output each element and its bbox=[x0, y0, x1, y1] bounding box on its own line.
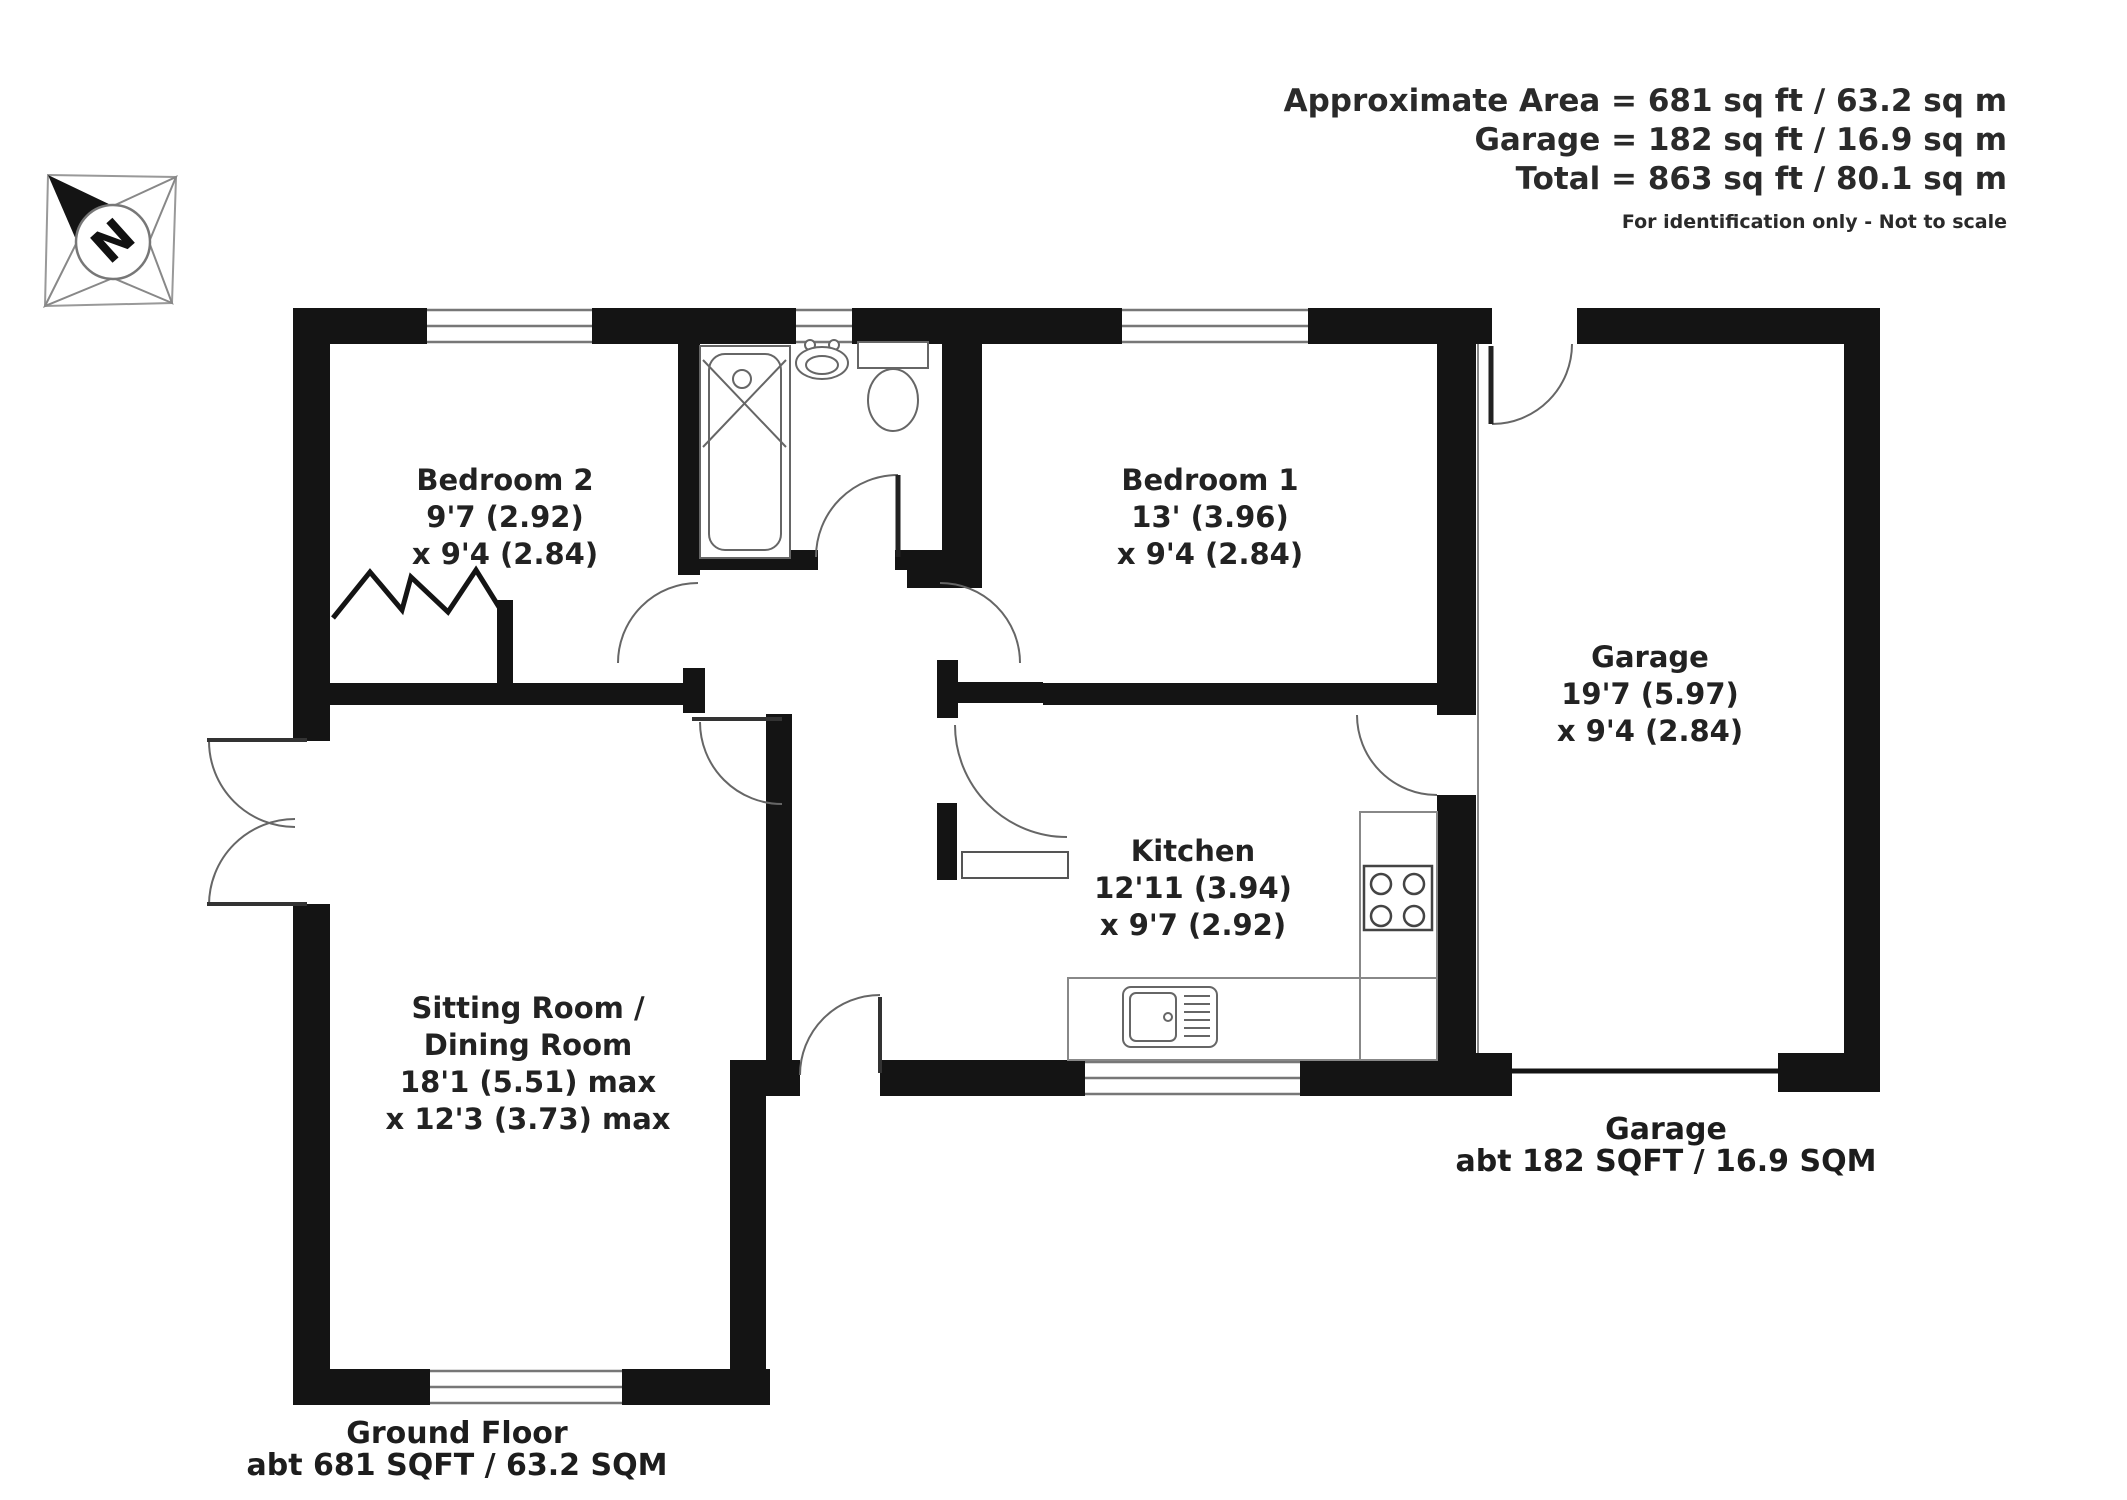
french-door-arc-lower bbox=[209, 819, 295, 905]
wall bbox=[683, 668, 705, 713]
door-arc-kitchen-garage bbox=[1357, 715, 1437, 795]
room-label-garage: Garage 19'7 (5.97) x 9'4 (2.84) bbox=[1557, 639, 1743, 750]
floor-title: Ground Floor bbox=[247, 1418, 668, 1450]
bathroom-sink bbox=[796, 340, 848, 379]
wall bbox=[1437, 795, 1476, 1060]
floor-area: abt 681 SQFT / 63.2 SQM bbox=[247, 1450, 668, 1482]
door-leaf-kitchen bbox=[962, 852, 1068, 878]
bathroom-fixtures bbox=[700, 340, 928, 558]
room-name: Kitchen bbox=[1094, 833, 1292, 870]
wall bbox=[766, 1060, 800, 1096]
area-summary-line: Approximate Area = 681 sq ft / 63.2 sq m bbox=[1284, 82, 2007, 121]
wall bbox=[592, 308, 796, 344]
room-dimension: 18'1 (5.51) max bbox=[386, 1064, 671, 1101]
wall bbox=[942, 344, 982, 588]
wall bbox=[293, 308, 330, 741]
wall bbox=[293, 904, 330, 1405]
room-label-sitting-room: Sitting Room / Dining Room 18'1 (5.51) m… bbox=[386, 990, 671, 1138]
room-name: Bedroom 2 bbox=[412, 462, 598, 499]
area-summary: Approximate Area = 681 sq ft / 63.2 sq m… bbox=[1284, 82, 2007, 233]
area-summary-line: Total = 863 sq ft / 80.1 sq m bbox=[1284, 160, 2007, 199]
wall bbox=[880, 1060, 1085, 1096]
window-kitchen bbox=[1085, 1062, 1300, 1094]
door-arc-bedroom1 bbox=[940, 583, 1020, 663]
disclaimer: For identification only - Not to scale bbox=[1284, 211, 2007, 233]
toilet bbox=[858, 342, 928, 431]
wall bbox=[1778, 1053, 1880, 1092]
wall bbox=[678, 344, 700, 575]
kitchen-sink bbox=[1123, 987, 1217, 1047]
wall bbox=[1437, 308, 1476, 715]
room-label-bedroom2: Bedroom 2 9'7 (2.92) x 9'4 (2.84) bbox=[412, 462, 598, 573]
room-dimension: 19'7 (5.97) bbox=[1557, 676, 1743, 713]
door-arc-back-door bbox=[800, 995, 880, 1075]
room-dimension: x 9'4 (2.84) bbox=[1117, 536, 1303, 573]
wall bbox=[937, 660, 958, 718]
wall bbox=[293, 1369, 430, 1405]
wall bbox=[852, 308, 1122, 344]
room-label-bedroom1: Bedroom 1 13' (3.96) x 9'4 (2.84) bbox=[1117, 462, 1303, 573]
door-leaf-bedroom1 bbox=[957, 682, 1043, 703]
wall bbox=[730, 1060, 766, 1405]
wall bbox=[1470, 1053, 1512, 1092]
door-arc-bathroom bbox=[816, 475, 898, 557]
wall bbox=[497, 600, 513, 683]
window-sitting-room bbox=[430, 1371, 622, 1403]
floorplan-canvas: N Approximate Area = 681 sq ft / 63.2 sq… bbox=[0, 0, 2127, 1500]
ground-floor-label: Ground Floor abt 681 SQFT / 63.2 SQM bbox=[247, 1418, 668, 1482]
wall bbox=[895, 550, 942, 570]
wall bbox=[937, 803, 957, 880]
hob bbox=[1364, 866, 1432, 930]
room-dimension: 12'11 (3.94) bbox=[1094, 870, 1292, 907]
room-name: Bedroom 1 bbox=[1117, 462, 1303, 499]
wall bbox=[1043, 683, 1437, 705]
room-dimension: x 9'7 (2.92) bbox=[1094, 907, 1292, 944]
doors bbox=[207, 344, 1572, 1075]
room-dimension: 9'7 (2.92) bbox=[412, 499, 598, 536]
french-door-arc-upper bbox=[209, 741, 295, 827]
room-dimension: x 9'4 (2.84) bbox=[412, 536, 598, 573]
room-name: Sitting Room / bbox=[386, 990, 671, 1027]
door-arc-garage-side bbox=[1492, 344, 1572, 424]
floor-area: abt 182 SQFT / 16.9 SQM bbox=[1456, 1146, 1877, 1178]
wall bbox=[1577, 308, 1880, 344]
room-label-kitchen: Kitchen 12'11 (3.94) x 9'7 (2.92) bbox=[1094, 833, 1292, 944]
room-dimension: 13' (3.96) bbox=[1117, 499, 1303, 536]
bathtub bbox=[700, 346, 790, 558]
window-bedroom2 bbox=[427, 310, 592, 342]
wall bbox=[1844, 308, 1880, 1092]
counter-right bbox=[1360, 812, 1437, 1060]
door-arc-kitchen bbox=[955, 725, 1067, 837]
wall bbox=[766, 714, 792, 1060]
wall bbox=[293, 683, 705, 705]
garage-footer-label: Garage abt 182 SQFT / 16.9 SQM bbox=[1456, 1114, 1877, 1178]
room-name: Garage bbox=[1557, 639, 1743, 676]
wall-break-zigzag bbox=[333, 570, 499, 618]
door-arc-bedroom2 bbox=[618, 583, 698, 663]
room-dimension: x 12'3 (3.73) max bbox=[386, 1101, 671, 1138]
room-name: Dining Room bbox=[386, 1027, 671, 1064]
window-bedroom1 bbox=[1122, 310, 1308, 342]
wall bbox=[907, 568, 942, 588]
window-bathroom bbox=[796, 310, 852, 342]
room-dimension: x 9'4 (2.84) bbox=[1557, 713, 1743, 750]
floor-title: Garage bbox=[1456, 1114, 1877, 1146]
area-summary-line: Garage = 182 sq ft / 16.9 sq m bbox=[1284, 121, 2007, 160]
